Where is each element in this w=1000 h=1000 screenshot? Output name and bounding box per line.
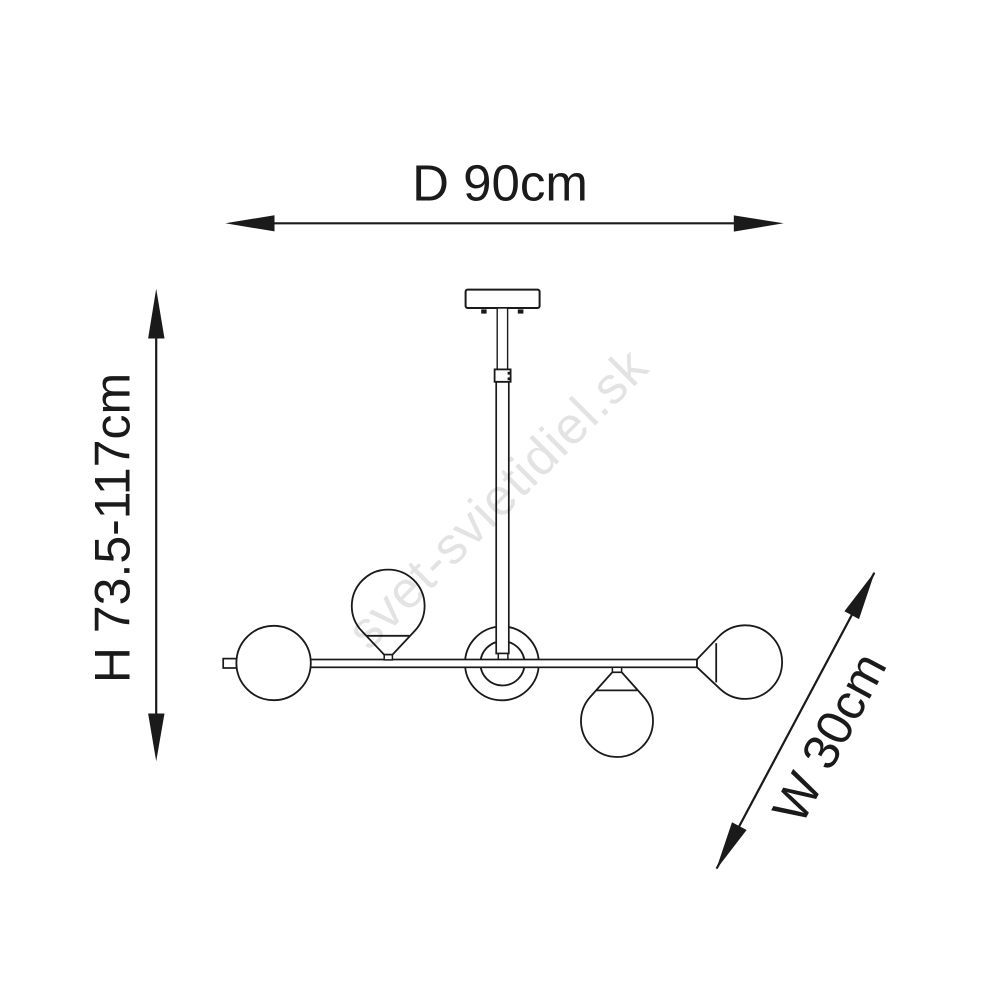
svg-text:D 90cm: D 90cm xyxy=(412,155,588,212)
svg-text:H 73.5-117cm: H 73.5-117cm xyxy=(85,373,141,683)
